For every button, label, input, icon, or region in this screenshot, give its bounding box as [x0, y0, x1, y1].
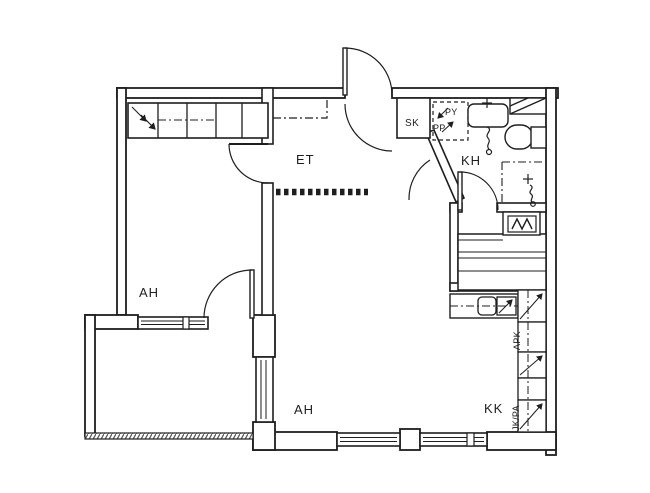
shower-drain-pipe: [530, 185, 532, 202]
balcony-wall-lower-post: [253, 422, 275, 450]
toilet: [505, 125, 546, 149]
room-label-bedroom: AH: [139, 286, 159, 299]
dishwasher: [518, 322, 546, 352]
toilet-tank: [531, 127, 546, 148]
wall-top-right: [392, 88, 558, 98]
entrance-door-leaf: [343, 48, 347, 95]
sink-drain-pipe: [487, 127, 490, 149]
sauna: [458, 212, 546, 290]
label-cleaning-closet: SK: [405, 119, 419, 129]
floor-plan: ET KH AH AH KK SK PY PP APK JK/PA: [0, 0, 650, 493]
sauna-door: [458, 172, 498, 210]
wall-bottom-right-segment: [487, 432, 556, 450]
cabinet-plain: [518, 378, 546, 400]
shower-area: [502, 162, 546, 206]
room-label-bathroom: KH: [461, 154, 481, 167]
room-label-livingroom: AH: [294, 403, 314, 416]
balcony-door-swing: [204, 270, 252, 318]
balcony-left-wall: [85, 315, 95, 436]
entrance-door: [343, 48, 392, 151]
room-label-hall: ET: [296, 153, 315, 166]
wall-top-left: [117, 88, 345, 98]
balcony-wall-upper-post: [253, 315, 275, 357]
bathroom-sink: [468, 98, 508, 155]
wardrobe-row: [128, 103, 268, 138]
wall-bottom-center-post: [400, 429, 420, 450]
leftroom-door: [229, 144, 268, 183]
sauna-door-swing: [460, 172, 498, 210]
entrance-door-outer-swing: [345, 48, 392, 95]
wall-sauna-left: [450, 203, 458, 291]
leftroom-door-swing: [229, 144, 268, 183]
balcony-door-leaf: [250, 270, 254, 318]
room-label-kitchenette: KK: [484, 402, 503, 415]
ceiling-dropline: [273, 100, 327, 118]
label-dishwasher: APK: [513, 331, 522, 350]
window-leftroom-balcony: [138, 317, 208, 329]
floor-drain: [487, 150, 492, 155]
floor-plan-drawing: [0, 0, 650, 493]
window-bottom-1: [337, 433, 400, 446]
balcony-door: [204, 270, 254, 318]
toilet-bowl: [505, 125, 533, 149]
label-fridge-freezer: JK/PA: [512, 405, 521, 431]
balcony-railing: [85, 433, 253, 439]
window-balcony-livingroom: [256, 357, 273, 422]
label-dryer: PP: [433, 124, 446, 133]
entrance-door-inner-swing: [345, 104, 392, 151]
window-bottom-2: [420, 433, 487, 446]
bathroom-door-swing: [409, 160, 430, 200]
duct-shaft: [510, 98, 546, 114]
wall-left: [117, 88, 126, 315]
wall-leftroom-lower: [262, 183, 273, 315]
sauna-benches: [458, 234, 546, 290]
hall-symbols: [273, 100, 368, 192]
kitchen-tall-units: [518, 290, 546, 432]
sauna-door-leaf: [458, 172, 462, 210]
label-washing-machine: PY: [445, 108, 458, 117]
windows: [138, 317, 487, 446]
sauna-heater: [503, 212, 540, 235]
wall-right: [546, 88, 556, 455]
wall-sauna-top: [497, 203, 546, 212]
